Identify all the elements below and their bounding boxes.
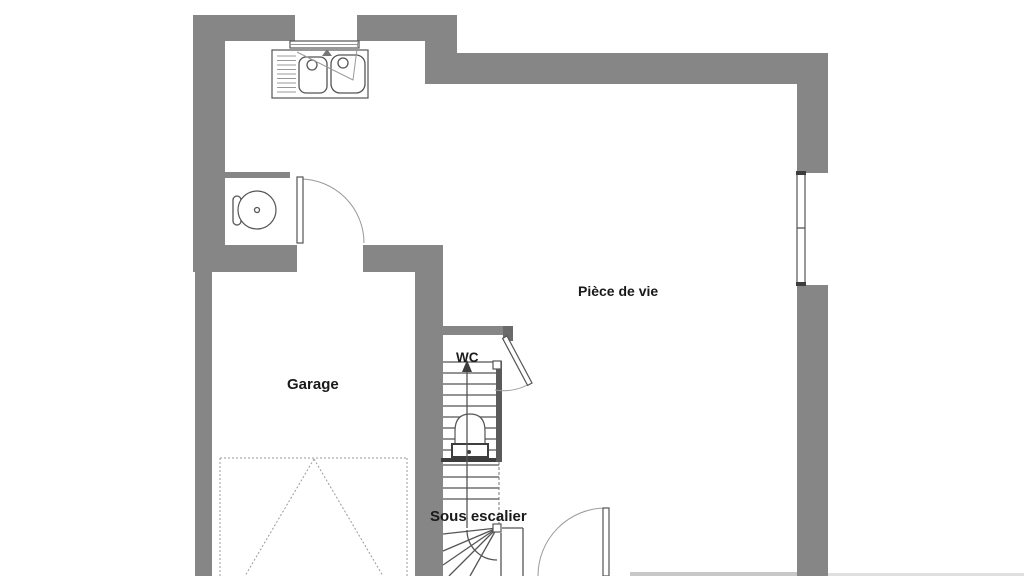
wall-kitchen-stub	[225, 172, 290, 178]
floor-plan-drawing	[0, 0, 1024, 576]
kitchen-window-icon	[290, 41, 359, 48]
wall-kitchen-garage-left	[193, 245, 297, 272]
wall-bottom-edge	[630, 572, 797, 576]
stair-winders	[443, 528, 523, 576]
wall-step-block	[425, 15, 457, 53]
living-room-label: Pièce de vie	[578, 284, 658, 299]
staircase-icon	[443, 362, 523, 576]
floor-plan: Garage Pièce de vie WC Sous escalier	[0, 0, 1024, 576]
wall-garage-left	[195, 272, 212, 576]
wall-wc-bottom	[441, 458, 502, 462]
toilet-icon	[452, 414, 488, 457]
wall-left-upper	[193, 15, 225, 245]
wall-right-upper	[797, 84, 828, 173]
wall-right-lower	[797, 285, 828, 576]
wc-label: WC	[456, 351, 479, 366]
garage-door-dashed-icon	[220, 458, 407, 576]
entry-door-icon	[538, 508, 609, 576]
right-window-icon	[796, 171, 806, 286]
garage-label: Garage	[287, 377, 339, 394]
under-stairs-label: Sous escalier	[430, 509, 527, 526]
wall-kitchen-garage-right	[363, 245, 443, 272]
kitchen-sink-icon	[272, 41, 368, 98]
kitchen-door-icon	[297, 177, 364, 243]
wall-wc-top	[443, 326, 513, 335]
round-table-icon	[233, 191, 276, 229]
wall-garage-right	[415, 272, 443, 576]
wall-top-right	[425, 53, 828, 84]
wall-stair-right	[496, 361, 502, 462]
